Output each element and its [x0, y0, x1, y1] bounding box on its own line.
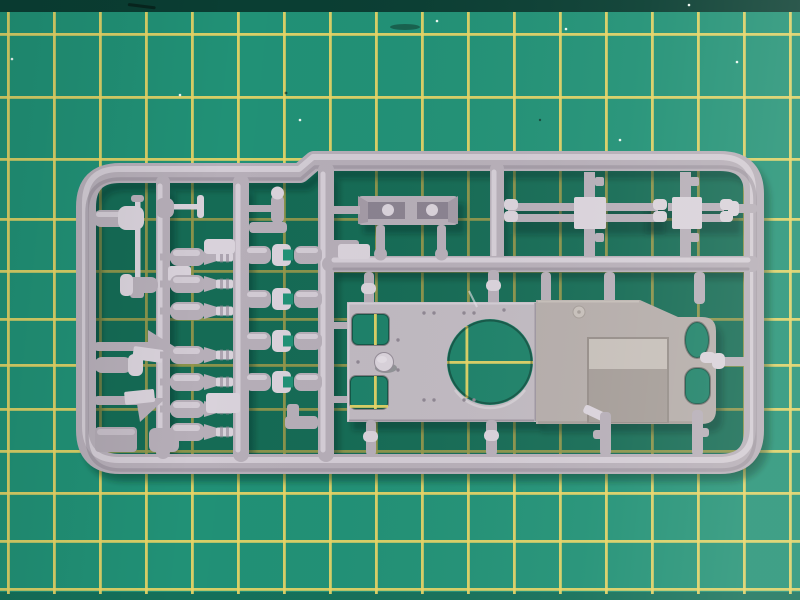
photo-lighting-overlay [0, 0, 800, 600]
photo-sprue-on-cutting-mat [0, 0, 800, 600]
scene-canvas [0, 0, 800, 600]
